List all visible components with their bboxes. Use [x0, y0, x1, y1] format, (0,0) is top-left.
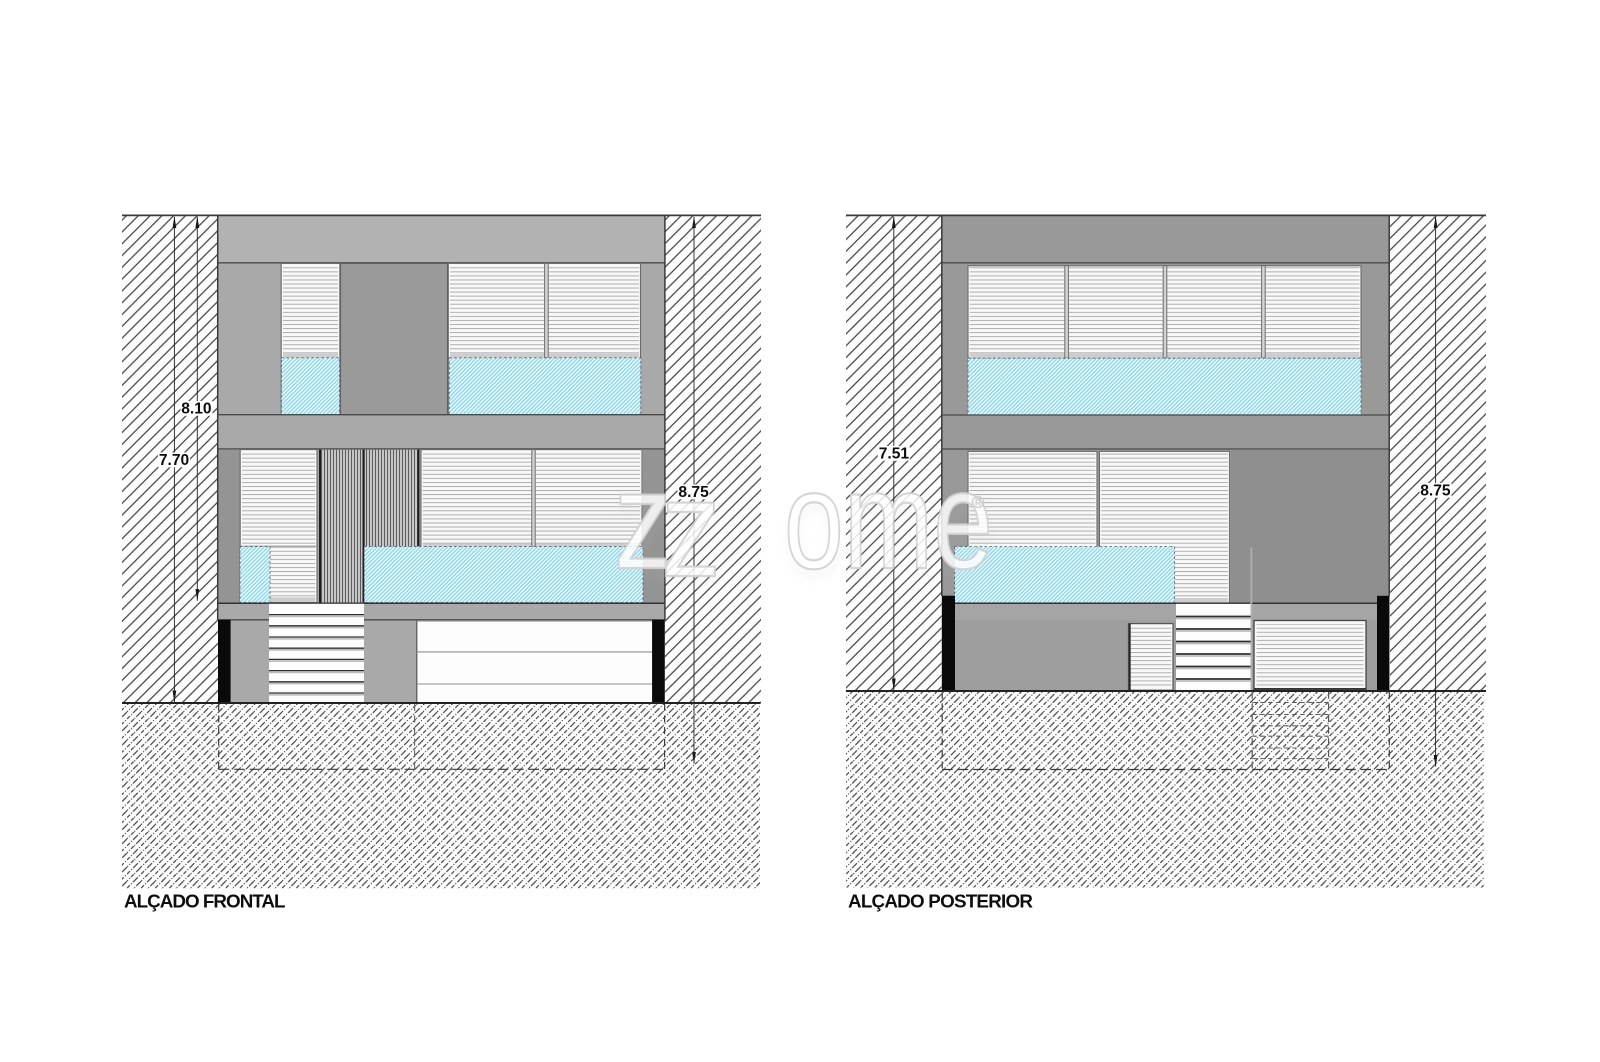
svg-text:ALÇADO POSTERIOR: ALÇADO POSTERIOR	[848, 891, 1033, 912]
svg-text:8.10: 8.10	[181, 400, 212, 417]
svg-text:ome: ome	[784, 443, 993, 598]
svg-text:7.70: 7.70	[159, 452, 190, 469]
svg-text:ALÇADO FRONTAL: ALÇADO FRONTAL	[124, 891, 285, 912]
svg-text:8.75: 8.75	[1420, 482, 1451, 499]
svg-text:R: R	[975, 499, 981, 508]
svg-text:z: z	[661, 451, 721, 606]
